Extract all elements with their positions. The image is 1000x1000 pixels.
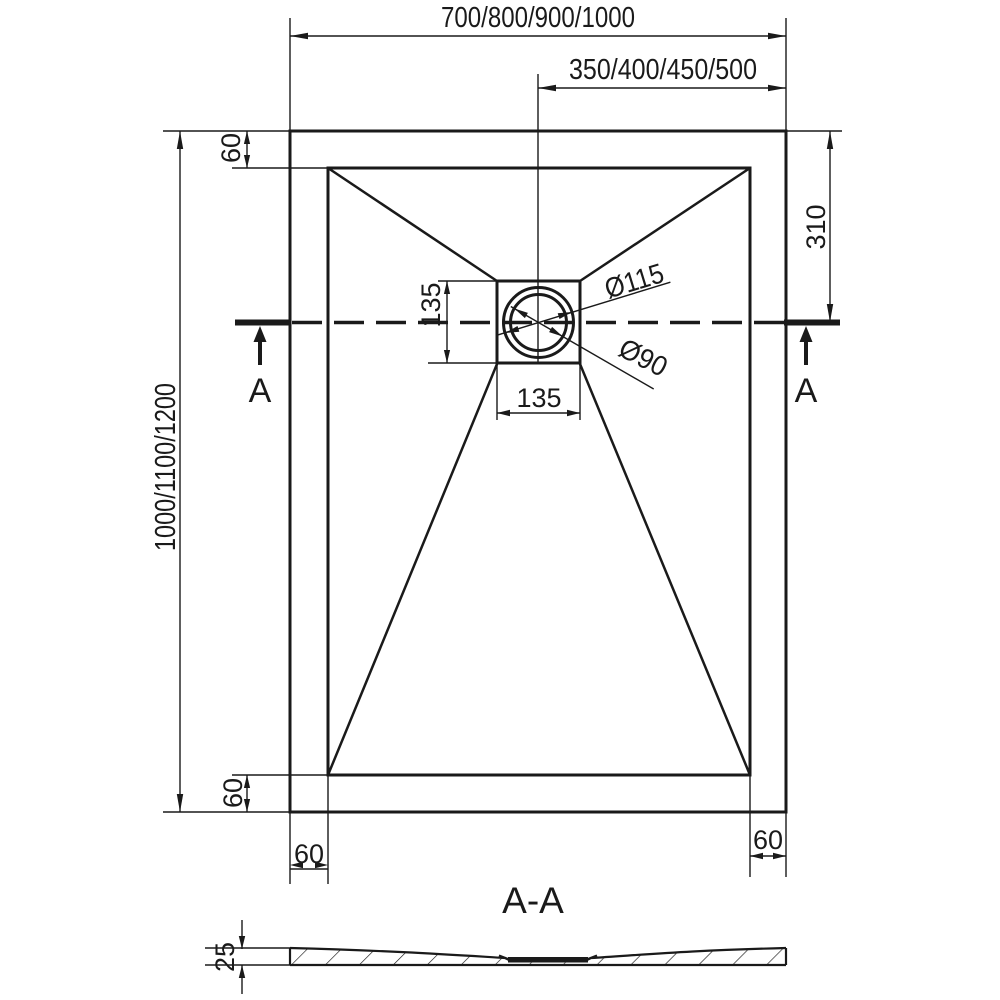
section-marker-left-label: A — [249, 372, 272, 410]
dim-overall-length-label: 1000/1100/1200 — [150, 383, 182, 551]
plan-view: 700/800/900/1000 350/400/450/500 1000/11… — [150, 2, 842, 994]
section-marker-right-label: A — [795, 372, 818, 410]
dim-bottom-left-margin-label: 60 — [294, 839, 324, 869]
section-arrow-right — [800, 326, 813, 342]
drawing-canvas: 700/800/900/1000 350/400/450/500 1000/11… — [0, 0, 1000, 1000]
tray-basin-edge — [328, 168, 750, 775]
dim-drain-offset-label: 350/400/450/500 — [569, 54, 757, 86]
dim-bottom-right-margin-label: 60 — [753, 825, 783, 855]
dim-drain-inner-diameter-label: Ø90 — [614, 332, 673, 382]
section-title: A-A — [502, 880, 564, 921]
dim-drain-square-width-label: 135 — [516, 383, 561, 413]
dim-overall-width-label: 700/800/900/1000 — [441, 2, 635, 34]
dim-drain-square-height-label: 135 — [416, 282, 446, 327]
dim-thickness-label: 25 — [210, 942, 240, 972]
dim-top-margin-label: 60 — [216, 133, 246, 163]
dim-bottom-margin-label: 60 — [218, 778, 248, 808]
dim-drain-from-top-label: 310 — [801, 204, 831, 249]
section-view: A-A 25 — [210, 880, 786, 972]
shower-tray-technical-drawing: 700/800/900/1000 350/400/450/500 1000/11… — [0, 0, 1000, 1000]
section-drain-cover — [499, 956, 597, 963]
dim-drain-outer-diameter-label: Ø115 — [601, 257, 667, 304]
slope-fold-lines — [328, 168, 750, 775]
dimension-arrowheads — [177, 33, 833, 978]
section-arrow-left — [254, 326, 267, 342]
